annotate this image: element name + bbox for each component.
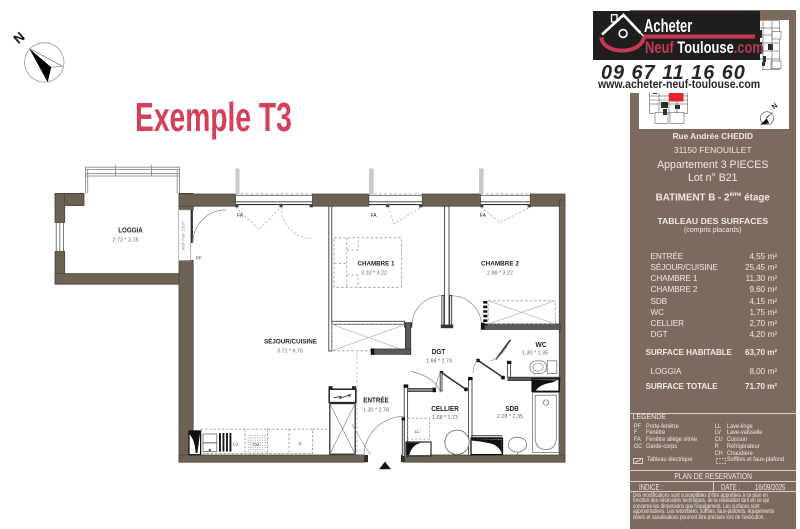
svg-text:FA: FA [480,213,487,219]
svg-text:CU: CU [253,442,260,447]
svg-text:2.72 * 3.15: 2.72 * 3.15 [112,238,138,244]
svg-text:SÉJOUR/CUISINE: SÉJOUR/CUISINE [264,337,317,346]
svg-text:FA: FA [237,213,244,219]
svg-text:seuil max 15cm: seuil max 15cm [181,221,186,251]
svg-text:2.98 * 3.22: 2.98 * 3.22 [487,271,513,277]
svg-text:1.68 * 2.74: 1.68 * 2.74 [426,359,452,365]
svg-text:N: N [11,29,28,47]
svg-text:R: R [298,442,302,447]
svg-text:1.30 * 2.78: 1.30 * 2.78 [363,408,389,414]
svg-text:WC: WC [536,342,547,349]
svg-text:CHAMBRE 2: CHAMBRE 2 [481,261,519,268]
svg-text:LL: LL [415,429,421,435]
svg-text:CELLIER: CELLIER [431,406,459,413]
svg-text:1.68 * 1.73: 1.68 * 1.73 [432,415,458,421]
svg-text:1.30 * 1.35: 1.30 * 1.35 [522,351,548,357]
svg-text:ENTRÉE: ENTRÉE [363,396,389,405]
svg-text:N: N [771,102,779,111]
svg-text:LOGGIA: LOGGIA [118,228,143,235]
svg-text:FA: FA [371,213,378,219]
svg-text:LV: LV [233,442,239,447]
svg-text:CHAMBRE 1: CHAMBRE 1 [358,261,395,268]
svg-text:2.03 * 2.35: 2.03 * 2.35 [497,414,523,420]
svg-text:3.10 * 3.22: 3.10 * 3.22 [361,271,387,277]
svg-text:SDB: SDB [505,406,519,413]
svg-text:PF: PF [196,256,202,262]
svg-text:DGT: DGT [432,349,446,356]
svg-text:3.71 * 6.70: 3.71 * 6.70 [277,349,303,355]
